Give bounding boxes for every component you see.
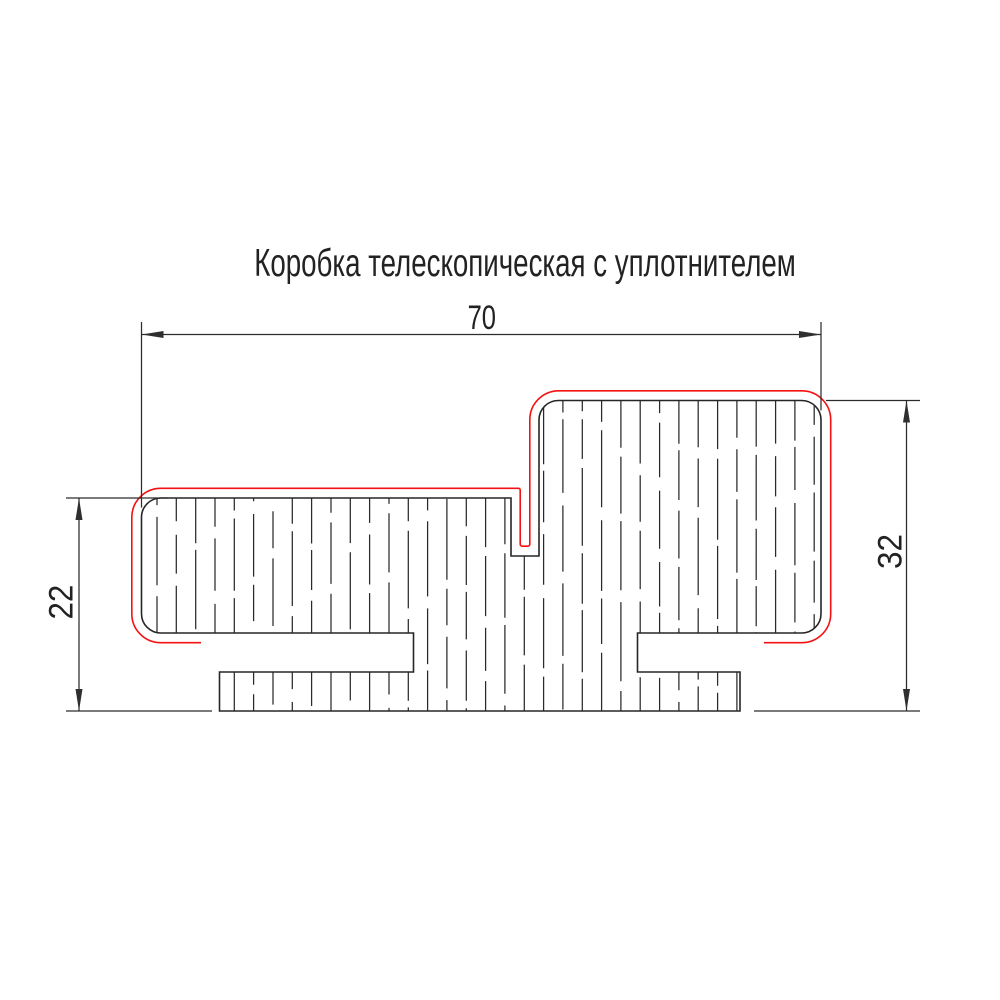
- svg-text:70: 70: [468, 299, 496, 337]
- svg-text:22: 22: [42, 585, 80, 620]
- svg-text:32: 32: [872, 534, 910, 569]
- svg-text:Коробка телескопическая с упло: Коробка телескопическая с уплотнителем: [254, 242, 796, 285]
